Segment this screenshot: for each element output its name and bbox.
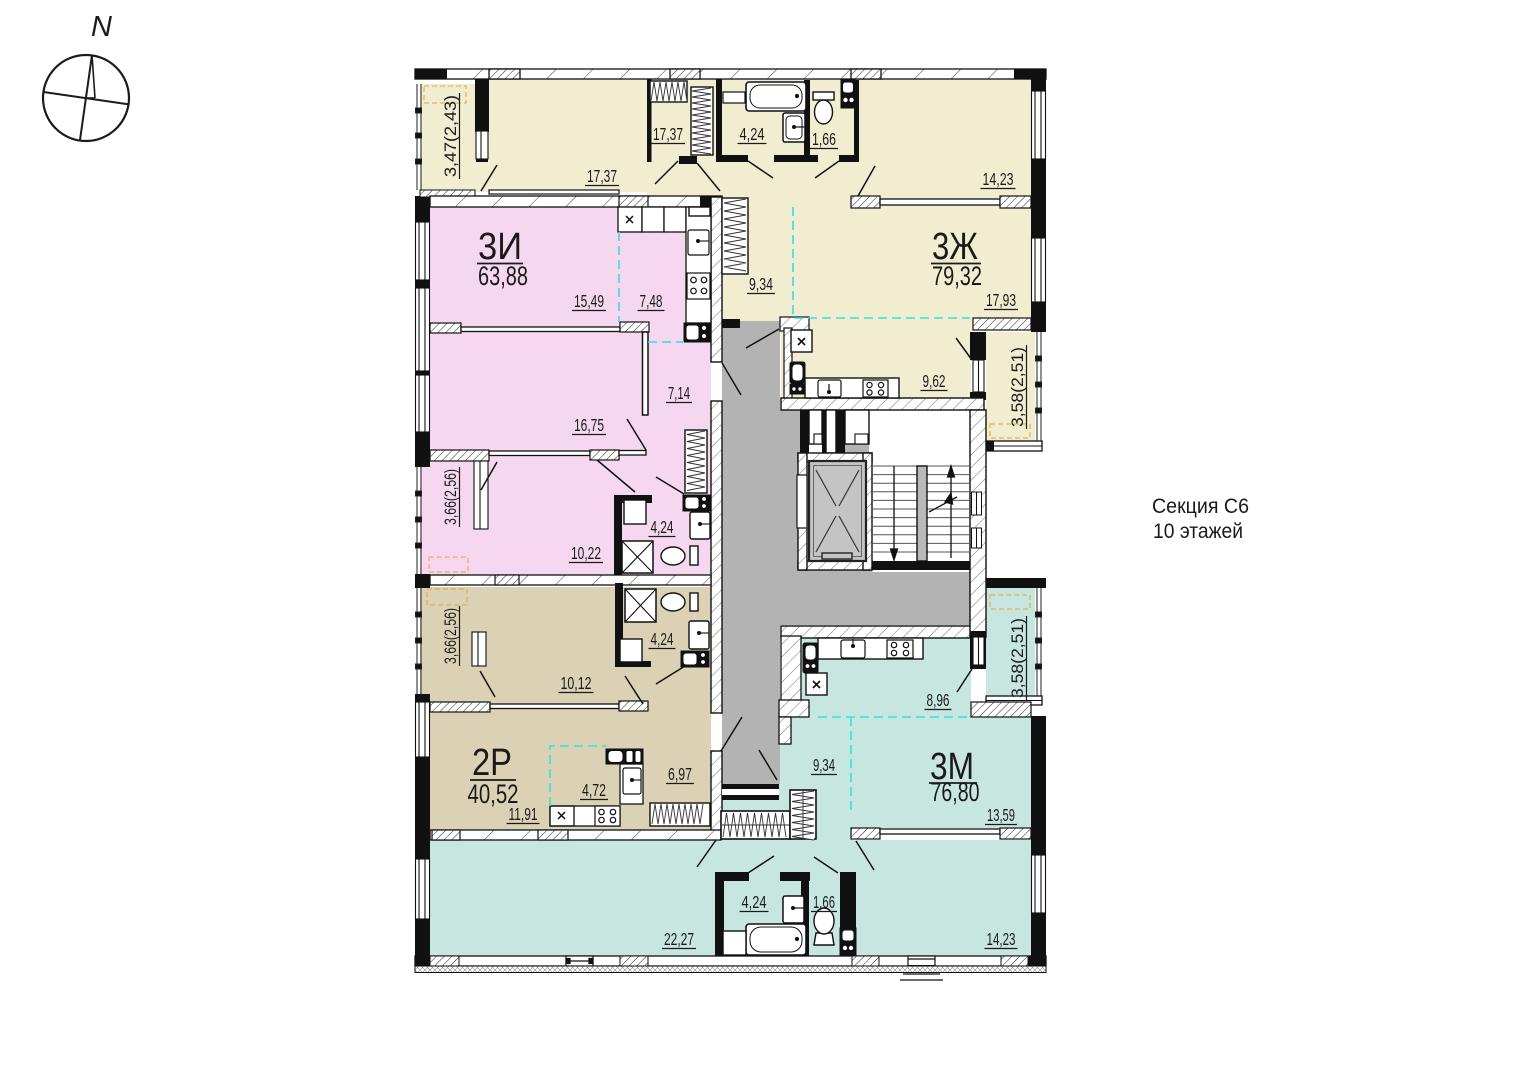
svg-text:9,34: 9,34 — [813, 755, 835, 775]
svg-text:3,58(2,51): 3,58(2,51) — [1009, 347, 1027, 427]
svg-text:2Р: 2Р — [472, 742, 512, 784]
svg-text:10,22: 10,22 — [571, 543, 601, 563]
svg-text:4,24: 4,24 — [742, 892, 767, 912]
svg-text:15,49: 15,49 — [574, 291, 604, 311]
svg-text:3,66(2,56): 3,66(2,56) — [442, 469, 460, 525]
svg-text:6,97: 6,97 — [668, 764, 692, 784]
svg-text:63,88: 63,88 — [478, 261, 528, 291]
svg-text:3,58(2,51): 3,58(2,51) — [1009, 618, 1027, 698]
svg-text:3,66(2,56): 3,66(2,56) — [442, 608, 460, 664]
svg-text:16,75: 16,75 — [574, 415, 604, 435]
svg-text:79,32: 79,32 — [932, 261, 982, 291]
svg-text:4,24: 4,24 — [651, 629, 674, 649]
svg-text:76,80: 76,80 — [931, 777, 980, 807]
svg-text:17,93: 17,93 — [986, 290, 1016, 310]
svg-text:22,27: 22,27 — [664, 929, 694, 949]
svg-text:4,24: 4,24 — [651, 517, 674, 537]
svg-text:10 этажей: 10 этажей — [1153, 519, 1243, 543]
svg-text:4,24: 4,24 — [740, 124, 765, 144]
svg-text:Секция С6: Секция С6 — [1152, 494, 1249, 518]
svg-text:7,48: 7,48 — [640, 291, 663, 311]
svg-text:17,37: 17,37 — [653, 124, 683, 144]
svg-text:3,47(2,43): 3,47(2,43) — [442, 95, 460, 177]
svg-text:11,91: 11,91 — [509, 804, 538, 824]
svg-text:9,34: 9,34 — [749, 274, 773, 294]
svg-text:8,96: 8,96 — [927, 690, 950, 710]
svg-text:10,12: 10,12 — [561, 673, 592, 693]
svg-text:7,14: 7,14 — [668, 383, 690, 403]
svg-text:14,23: 14,23 — [983, 169, 1014, 189]
svg-text:13,59: 13,59 — [987, 805, 1015, 825]
svg-text:1,66: 1,66 — [813, 892, 835, 912]
svg-text:17,37: 17,37 — [587, 166, 617, 186]
svg-text:N: N — [91, 11, 112, 43]
svg-text:1,66: 1,66 — [812, 129, 836, 149]
svg-text:4,72: 4,72 — [582, 780, 606, 800]
svg-text:9,62: 9,62 — [923, 371, 946, 391]
svg-text:14,23: 14,23 — [987, 929, 1016, 949]
